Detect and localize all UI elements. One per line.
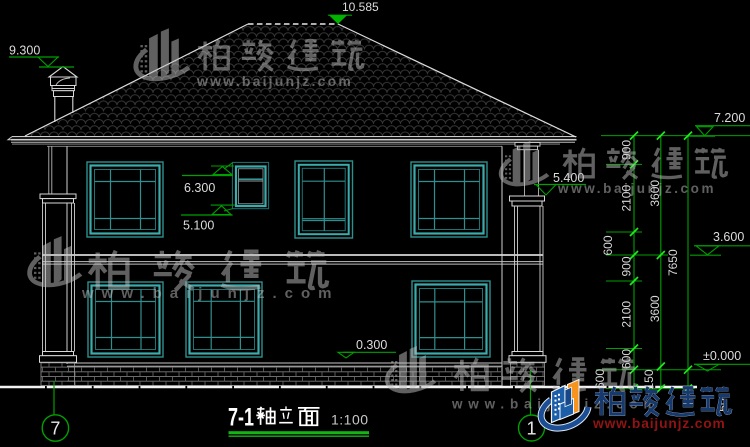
svg-text:900: 900 [620,256,634,276]
svg-text:7: 7 [50,419,60,439]
svg-text:www.baijunjz.com: www.baijunjz.com [81,285,339,302]
svg-text:0.300: 0.300 [356,338,387,352]
svg-text:www.baijunjz.com: www.baijunjz.com [196,73,353,89]
svg-text:5.100: 5.100 [183,219,214,233]
svg-text:1: 1 [526,419,536,439]
svg-text:10.585: 10.585 [342,0,379,14]
svg-text:600: 600 [620,349,634,369]
svg-text:3.600: 3.600 [713,230,744,244]
svg-text:7-1: 7-1 [228,404,254,432]
svg-text:600: 600 [593,369,607,389]
svg-text:7650: 7650 [666,249,680,276]
svg-text:1:100: 1:100 [331,412,369,428]
svg-text:3600: 3600 [648,295,662,322]
svg-text:www.baijunjz.com: www.baijunjz.com [592,416,726,431]
svg-text:6.300: 6.300 [184,181,215,195]
svg-text:7.200: 7.200 [714,111,745,125]
svg-text:±0.000: ±0.000 [703,349,741,363]
svg-text:600: 600 [601,235,615,255]
svg-text:2100: 2100 [620,301,634,328]
svg-text:150: 150 [642,369,656,389]
svg-text:www.baijunjz.com: www.baijunjz.com [557,181,716,196]
svg-text:9.300: 9.300 [9,44,40,58]
